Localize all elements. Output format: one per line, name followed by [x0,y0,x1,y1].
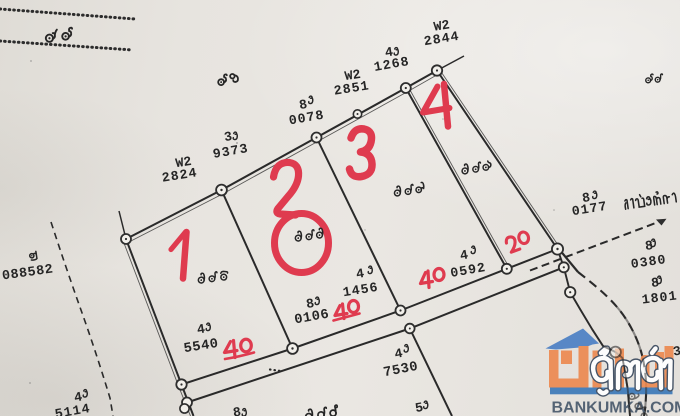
svg-text:088582: 088582 [1,262,54,284]
svg-text:5540: 5540 [183,337,220,357]
svg-text:2824: 2824 [161,165,199,185]
svg-text:0177: 0177 [571,199,609,219]
svg-text:2851: 2851 [333,78,371,98]
svg-text:5114: 5114 [54,401,92,416]
svg-text:9373: 9373 [212,141,250,162]
svg-text:0078: 0078 [288,107,326,128]
svg-text:1456: 1456 [342,280,380,300]
svg-text:1801: 1801 [641,288,678,307]
svg-text:3: 3 [223,129,233,145]
svg-text:1268: 1268 [373,54,411,75]
svg-text:4: 4 [196,321,206,337]
svg-text:BANKUMKA.COM: BANKUMKA.COM [552,400,680,416]
svg-text:5: 5 [414,400,424,416]
svg-text:7530: 7530 [382,360,419,381]
svg-text:8: 8 [232,404,242,416]
svg-text:4: 4 [459,247,469,263]
svg-text:0106: 0106 [293,308,330,329]
svg-text:4: 4 [355,266,365,282]
svg-text:4: 4 [393,346,404,362]
svg-text:0380: 0380 [630,252,668,272]
svg-text:2844: 2844 [423,29,461,49]
